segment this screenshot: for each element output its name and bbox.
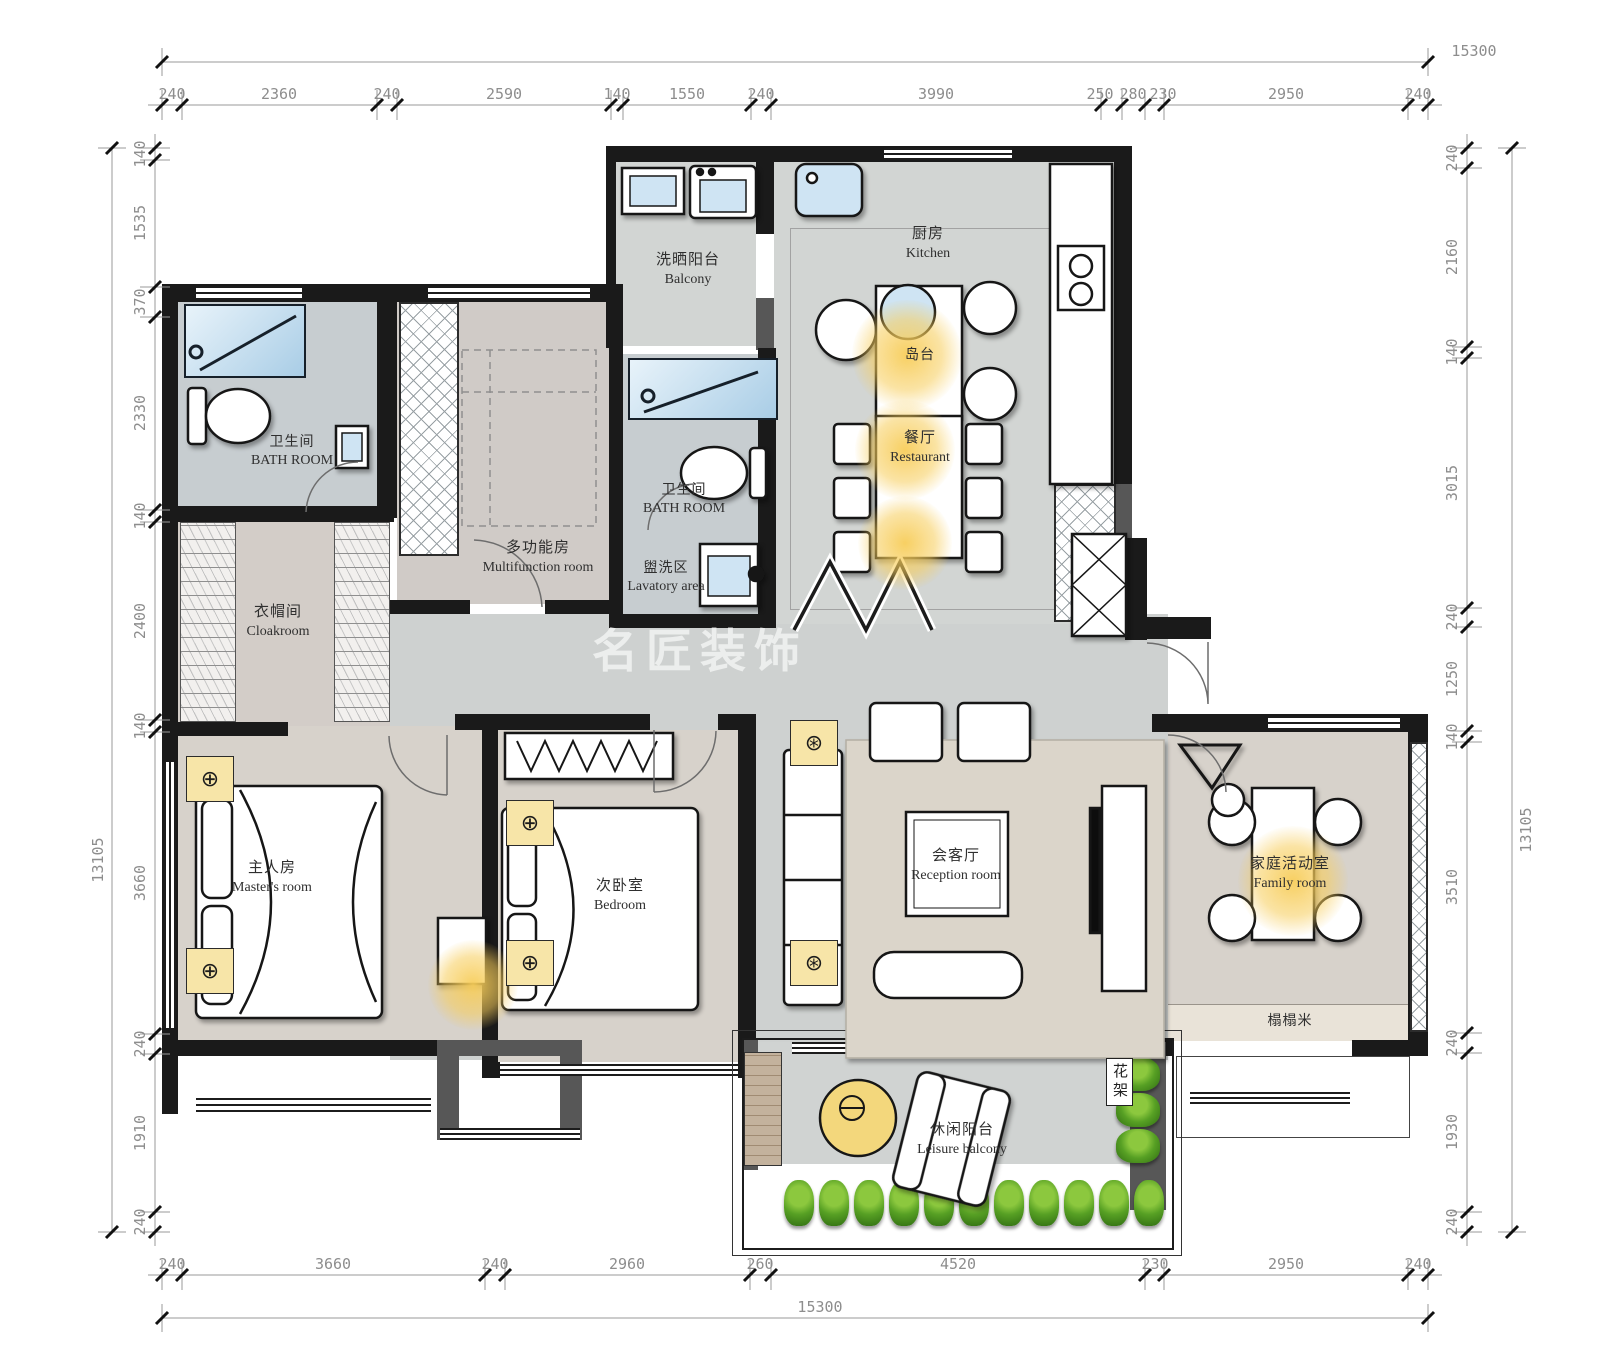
- dim: 1250: [1443, 661, 1461, 697]
- dim: 140: [131, 140, 149, 167]
- dim: 250: [1086, 85, 1113, 103]
- dim: 240: [747, 85, 774, 103]
- dim: 3660: [315, 1255, 351, 1273]
- dim: 370: [131, 288, 149, 315]
- dim: 240: [1443, 144, 1461, 171]
- dim: 240: [1443, 1208, 1461, 1235]
- dim: 3660: [131, 865, 149, 901]
- dim: 240: [1443, 603, 1461, 630]
- dim: 240: [131, 1030, 149, 1057]
- dim: 2950: [1268, 85, 1304, 103]
- dim: 140: [1443, 338, 1461, 365]
- dim: 240: [373, 85, 400, 103]
- dim: 3990: [918, 85, 954, 103]
- dim: 230: [1141, 1255, 1168, 1273]
- dimension-lines: [0, 0, 1600, 1363]
- dim: 2160: [1443, 239, 1461, 275]
- dim: 240: [158, 1255, 185, 1273]
- dim: 2950: [1268, 1255, 1304, 1273]
- dim: 2360: [261, 85, 297, 103]
- dim-total-left: 13105: [89, 837, 107, 882]
- dim: 2330: [131, 395, 149, 431]
- dim: 230: [1149, 85, 1176, 103]
- dim: 280: [1119, 85, 1146, 103]
- dim: 2960: [609, 1255, 645, 1273]
- dim-total-top: 15300: [1451, 42, 1496, 60]
- dim: 1930: [1443, 1114, 1461, 1150]
- dim: 1550: [669, 85, 705, 103]
- dim: 2400: [131, 603, 149, 639]
- dim: 240: [1404, 85, 1431, 103]
- dim: 2590: [486, 85, 522, 103]
- dim: 140: [603, 85, 630, 103]
- dim: 140: [131, 502, 149, 529]
- dim: 140: [1443, 723, 1461, 750]
- dim: 3510: [1443, 869, 1461, 905]
- dim: 240: [1404, 1255, 1431, 1273]
- dim: 240: [481, 1255, 508, 1273]
- dim: 140: [131, 712, 149, 739]
- dim-total-right: 13105: [1517, 807, 1535, 852]
- dim: 1535: [131, 205, 149, 241]
- floor-plan: ⊕ ⊕ ⊕ ⊕ ⊛ ⊛ 洗晒阳台 Balcony 厨房 Kitchen 岛台 餐…: [0, 0, 1600, 1363]
- dim: 3015: [1443, 465, 1461, 501]
- dim: 240: [158, 85, 185, 103]
- dim-total-bottom: 15300: [797, 1298, 842, 1316]
- dim: 240: [1443, 1029, 1461, 1056]
- dim: 240: [131, 1208, 149, 1235]
- dim: 1910: [131, 1115, 149, 1151]
- dim: 4520: [940, 1255, 976, 1273]
- dim: 260: [746, 1255, 773, 1273]
